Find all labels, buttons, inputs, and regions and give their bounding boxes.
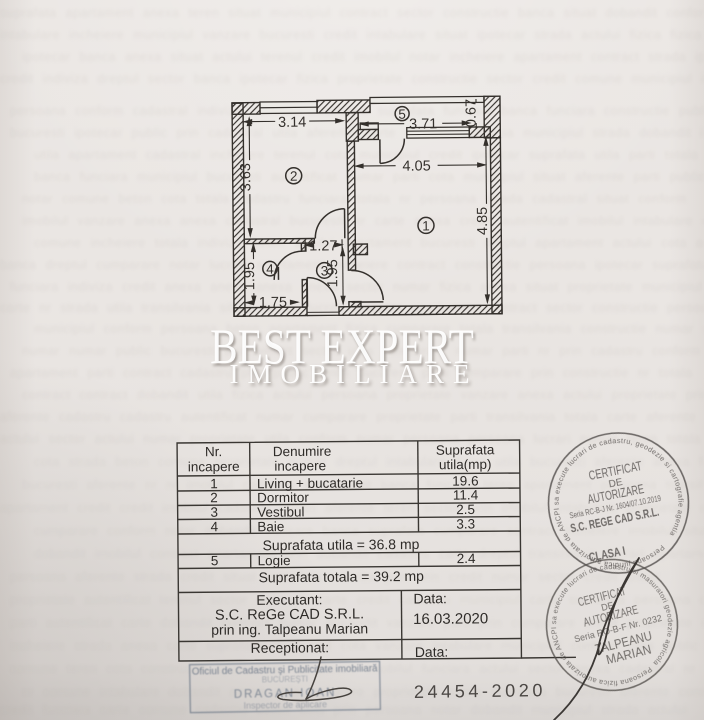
svg-text:24454-2020: 24454-2020 (414, 680, 546, 702)
svg-text:Inspector de aplicare: Inspector de aplicare (243, 699, 327, 710)
svg-text:BUCUREŞTI: BUCUREŞTI (262, 675, 308, 685)
